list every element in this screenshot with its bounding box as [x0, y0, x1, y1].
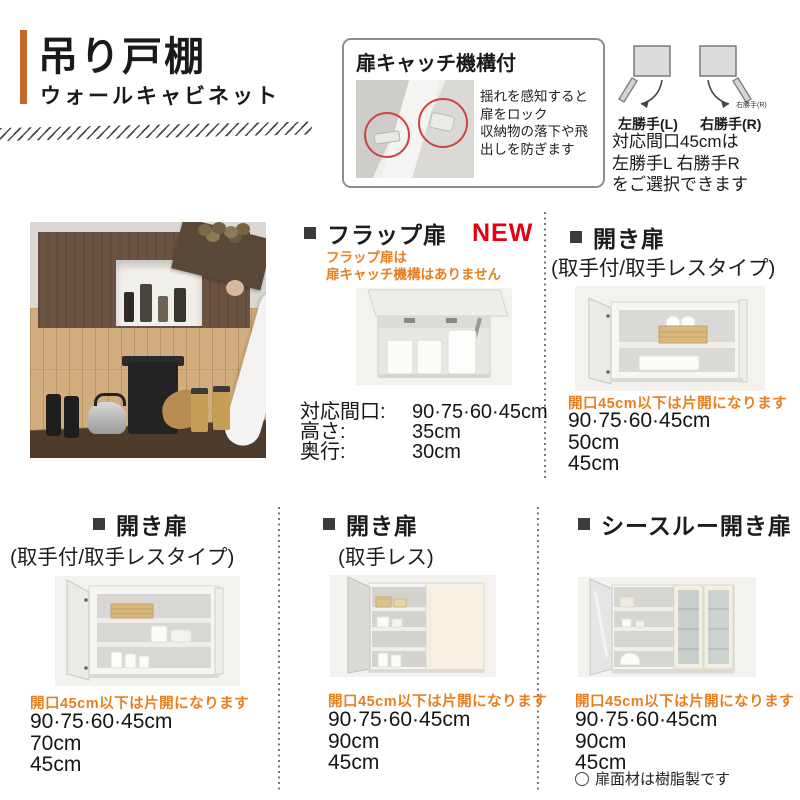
hinged-cabinet-image — [575, 286, 765, 391]
spec-label: 対応間口: — [300, 402, 412, 422]
section-header-hinged-left: 開き扉 — [93, 507, 188, 541]
storage-jar — [213, 386, 230, 430]
feature-desc-line: 出しを防ぎます — [480, 141, 588, 159]
size-line: 45cm — [30, 754, 172, 776]
size-list: 90·75·60·45cm 90cm 45cm — [328, 709, 470, 774]
feature-desc-line: 扉をロック — [480, 106, 588, 124]
section-bullet-icon — [578, 518, 590, 530]
right-hand-tiny-label: 右勝手(R) — [736, 100, 767, 110]
catch-hardware-icon — [373, 130, 400, 145]
page-title: 吊り戸棚 — [38, 24, 206, 82]
kitchen-photo — [30, 222, 266, 458]
spec-row: 対応間口: 90·75·60·45cm — [300, 402, 548, 422]
section-title: 開き扉 — [346, 507, 418, 541]
section-bullet-icon — [323, 518, 335, 530]
grinder — [64, 396, 79, 438]
feature-title: 扉キャッチ機構付 — [356, 47, 516, 76]
size-line: 90cm — [328, 731, 470, 753]
bottle — [140, 284, 152, 322]
hinged-cabinet-image — [55, 576, 240, 686]
left-hand-door-diagram — [616, 40, 678, 114]
section-divider — [278, 507, 280, 790]
section-header-hinged-top: 開き扉 — [570, 220, 665, 254]
spec-value: 35cm — [412, 422, 461, 442]
size-line: 70cm — [30, 733, 172, 755]
size-line: 90·75·60·45cm — [328, 709, 470, 731]
hatch-divider — [0, 121, 312, 141]
spec-row: 高さ: 35cm — [300, 422, 548, 442]
feature-description: 揺れを感知すると 扉をロック 収納物の落下や飛 出しを防ぎます — [480, 88, 588, 158]
spec-value: 30cm — [412, 442, 461, 462]
see-through-cabinet-image — [578, 577, 756, 677]
grinder — [46, 394, 61, 436]
section-bullet-icon — [93, 518, 105, 530]
flap-note-line: 扉キャッチ機構はありません — [326, 266, 501, 283]
kettle — [88, 402, 126, 434]
catalog-page: 吊り戸棚 ウォールキャビネット 扉キャッチ機構付 揺れを感知すると 扉をロック … — [0, 0, 800, 800]
section-subtitle: (取手付/取手レスタイプ) — [551, 251, 775, 281]
door-catch-feature-box: 扉キャッチ機構付 揺れを感知すると 扉をロック 収納物の落下や飛 出しを防ぎます — [342, 38, 605, 188]
size-line: 90·75·60·45cm — [30, 711, 172, 733]
size-line: 50cm — [568, 432, 710, 454]
section-subtitle: (取手付/取手レスタイプ) — [10, 540, 234, 570]
dried-plants — [198, 224, 212, 236]
feature-desc-line: 揺れを感知すると — [480, 88, 588, 106]
size-list: 90·75·60·45cm 90cm 45cm — [575, 709, 717, 774]
size-line: 90cm — [575, 731, 717, 753]
handing-note-line: 対応間口45cmは — [612, 131, 748, 153]
bottle — [124, 292, 134, 322]
title-accent-bar — [20, 30, 27, 104]
handing-note: 対応間口45cmは 左勝手L 右勝手R をご選択できます — [612, 131, 748, 196]
section-divider — [537, 507, 539, 790]
section-title: シースルー開き扉 — [601, 507, 792, 541]
size-line: 90·75·60·45cm — [568, 410, 710, 432]
section-title: 開き扉 — [116, 507, 188, 541]
catch-highlight-circle — [364, 112, 410, 158]
kettle-handle — [94, 393, 126, 406]
flap-cabinet-image — [356, 288, 512, 385]
flap-specs: 対応間口: 90·75·60·45cm 高さ: 35cm 奥行: 30cm — [300, 402, 548, 462]
handing-note-line: 左勝手L 右勝手R — [612, 153, 748, 175]
material-footnote-text: 扉面材は樹脂製です — [595, 768, 730, 789]
material-footnote: 扉面材は樹脂製です — [575, 768, 730, 789]
flap-note-line: フラップ扉は — [326, 249, 501, 266]
section-subtitle: (取手レス) — [338, 540, 434, 570]
person-hand — [226, 280, 244, 296]
jar — [158, 296, 168, 322]
spec-value: 90·75·60·45cm — [412, 402, 548, 422]
section-bullet-icon — [304, 227, 316, 239]
bottle — [174, 288, 186, 322]
catch-highlight-circle — [418, 98, 468, 148]
size-line: 90·75·60·45cm — [575, 709, 717, 731]
section-bullet-icon — [570, 231, 582, 243]
catch-hardware-icon — [429, 112, 456, 133]
door-catch-photo — [356, 80, 474, 178]
size-line: 45cm — [568, 453, 710, 475]
section-title: フラップ扉 — [327, 216, 447, 250]
spec-row: 奥行: 30cm — [300, 442, 548, 462]
spec-label: 高さ: — [300, 422, 412, 442]
storage-jar — [191, 388, 208, 432]
section-header-flap: フラップ扉 NEW — [304, 216, 533, 250]
section-header-handleless: 開き扉 — [323, 507, 418, 541]
section-title: 開き扉 — [593, 220, 665, 254]
new-badge: NEW — [472, 219, 533, 248]
handleless-cabinet-image — [330, 575, 496, 677]
size-list: 90·75·60·45cm 70cm 45cm — [30, 711, 172, 776]
handing-note-line: をご選択できます — [612, 174, 748, 196]
circle-icon — [575, 772, 589, 786]
section-header-see-through: シースルー開き扉 — [578, 507, 792, 541]
flap-note: フラップ扉は 扉キャッチ機構はありません — [326, 249, 501, 283]
feature-desc-line: 収納物の落下や飛 — [480, 123, 588, 141]
spec-label: 奥行: — [300, 442, 412, 462]
size-list: 90·75·60·45cm 50cm 45cm — [568, 410, 710, 475]
size-line: 45cm — [328, 752, 470, 774]
page-subtitle: ウォールキャビネット — [40, 80, 280, 110]
